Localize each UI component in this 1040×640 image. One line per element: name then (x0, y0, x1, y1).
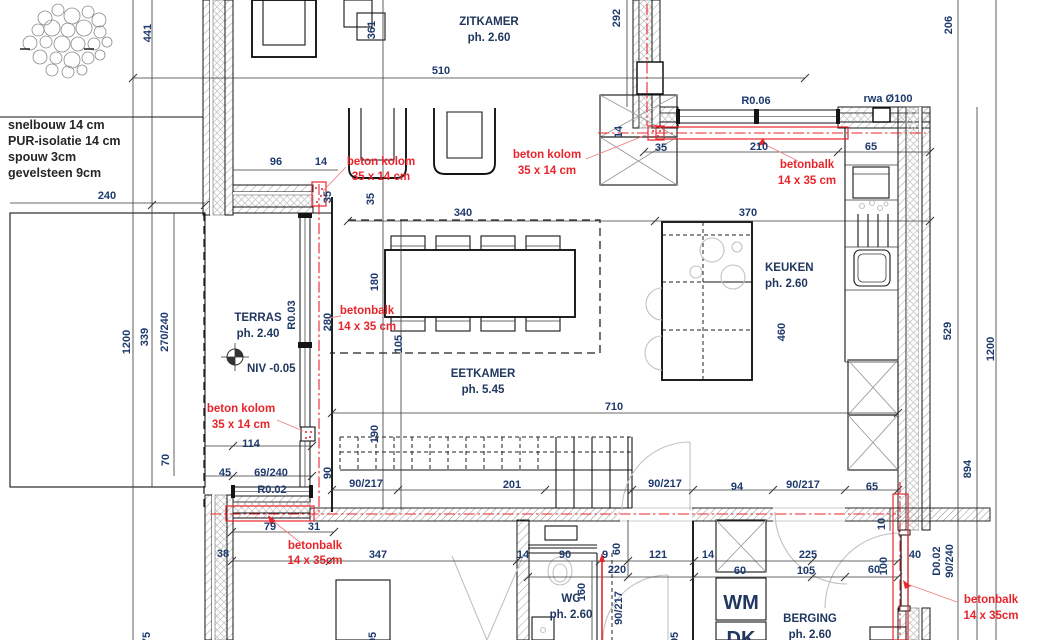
dim-69-240: 69/240 (254, 467, 288, 479)
dim-340: 340 (454, 207, 472, 219)
dim-460: 460 (776, 323, 788, 341)
wall-spec-line3: spouw 3cm (8, 150, 76, 164)
dim-70: 70 (160, 454, 172, 466)
dim-1200-left: 1200 (121, 330, 133, 354)
wall-terras-corner (233, 185, 313, 213)
dim-95-b: 95 (669, 632, 681, 640)
island-stools (645, 288, 662, 370)
dim-292: 292 (611, 9, 623, 27)
terras-niv: NIV -0.05 (247, 363, 296, 375)
dim-45: 45 (219, 467, 231, 479)
dim-79: 79 (264, 521, 276, 533)
dim-60-b: 60 (734, 565, 746, 577)
window-r003 (298, 213, 312, 492)
wall-chimney (633, 0, 663, 128)
note-kolom-1-size: 35 x 14 cm (352, 171, 410, 183)
dim-160: 160 (576, 583, 588, 601)
dim-door-b: 90/217 (648, 478, 682, 490)
dim-201: 201 (503, 479, 521, 491)
tree-sketch (20, 4, 112, 78)
dim-90-b: 90 (559, 549, 571, 561)
note-kolom-1: beton kolom (347, 156, 415, 168)
dim-10: 10 (876, 518, 888, 530)
side-tables (344, 0, 385, 40)
wall-bottom-left (205, 495, 310, 640)
dim-529: 529 (942, 322, 954, 340)
floorplan-canvas: snelbouw 14 cm PUR-isolatie 14 cm spouw … (0, 0, 1040, 640)
dim-180: 180 (369, 273, 381, 291)
dim-1200-right: 1200 (985, 337, 997, 361)
note-balk-3-size: 14 x 35cm (288, 555, 343, 567)
dim-65-b: 65 (866, 481, 878, 493)
drain-rack (858, 214, 888, 247)
note-kolom-2-size: 35 x 14 cm (518, 165, 576, 177)
dim-347: 347 (369, 549, 387, 561)
dim-220: 220 (608, 564, 626, 576)
ref-r003: R0.03 (286, 300, 298, 329)
note-kolom-3-size: 35 x 14 cm (212, 419, 270, 431)
dim-339: 339 (139, 328, 151, 346)
dim-31: 31 (308, 521, 320, 533)
floorplan-drawing: snelbouw 14 cm PUR-isolatie 14 cm spouw … (0, 0, 1040, 640)
dim-95-a: 95 (367, 632, 379, 640)
armchair-2 (434, 108, 495, 174)
wall-spec-line4: gevelsteen 9cm (8, 166, 101, 180)
note-balk-1: betonbalk (780, 159, 835, 171)
dim-280: 280 (322, 313, 334, 331)
dim-38: 38 (217, 548, 229, 560)
left-outbuilding (10, 213, 205, 487)
ref-d002: D0.02 (931, 546, 943, 575)
dim-240: 240 (98, 190, 116, 202)
dim-105-b: 105 (797, 565, 815, 577)
note-balk-4-size: 14 x 35cm (964, 610, 1019, 622)
dim-510: 510 (432, 65, 450, 77)
room-keuken: KEUKEN (765, 262, 814, 274)
kitchen-counter-appliances (853, 167, 890, 286)
dining-table (385, 236, 575, 331)
dim-14-a: 14 (315, 156, 328, 168)
dim-14-d: 14 (702, 549, 715, 561)
wall-wc (517, 520, 529, 640)
dim-94: 94 (731, 481, 744, 493)
note-balk-3: betonbalk (288, 540, 343, 552)
dim-894: 894 (962, 459, 974, 478)
wc-fixtures (532, 526, 612, 640)
wall-spec-line1: snelbouw 14 cm (8, 118, 105, 132)
window-r006 (676, 109, 840, 124)
appliance-dk: DK (727, 628, 756, 640)
dim-121: 121 (649, 549, 667, 561)
dimension-lines (10, 0, 996, 640)
ref-d002-size: 90/240 (944, 544, 956, 578)
room-terras: TERRAS (234, 312, 282, 324)
dim-100: 100 (878, 557, 890, 575)
room-eetkamer: EETKAMER (451, 368, 516, 380)
garage-marks (336, 556, 523, 640)
chairs-top (391, 236, 560, 250)
wall-spec-line2: PUR-isolatie 14 cm (8, 134, 121, 148)
note-balk-2-size: 14 x 35 cm (338, 321, 396, 333)
note-balk-2: betonbalk (340, 305, 395, 317)
note-balk-1-size: 14 x 35 cm (778, 175, 836, 187)
dim-114: 114 (242, 438, 261, 450)
dim-35-a: 35 (655, 142, 667, 154)
level-symbol (221, 343, 249, 371)
dim-door-a: 90/217 (349, 478, 383, 490)
dim-105-a: 105 (393, 335, 405, 353)
note-kolom-2: beton kolom (513, 149, 581, 161)
cooktop (690, 238, 745, 289)
room-wc-ph: ph. 2.60 (550, 609, 593, 621)
wall-spec-note: snelbouw 14 cm PUR-isolatie 14 cm spouw … (8, 118, 121, 180)
note-balk-4: betonbalk (964, 594, 1019, 606)
dim-door-d: 90/217 (613, 591, 625, 625)
dim-370: 370 (739, 207, 757, 219)
dim-35-c: 35 (365, 193, 377, 205)
room-keuken-ph: ph. 2.60 (765, 278, 808, 290)
kitchen-tall-cabinets (848, 360, 898, 470)
room-zitkamer-ph: ph. 2.60 (468, 32, 511, 44)
kitchen-island (645, 222, 752, 380)
chairs-bottom (391, 317, 560, 331)
dim-75: 75 (141, 632, 153, 640)
dim-441: 441 (142, 24, 154, 42)
wall-left-upper (203, 0, 233, 215)
ref-r006: R0.06 (741, 95, 770, 107)
room-terras-ph: ph. 2.40 (237, 328, 280, 340)
dim-35-b: 35 (322, 191, 334, 203)
room-eetkamer-ph: ph. 5.45 (462, 384, 505, 396)
dim-225: 225 (799, 549, 817, 561)
dim-door-c: 90/217 (786, 479, 820, 491)
appliance-wm: WM (723, 592, 759, 614)
sofa (252, 0, 316, 57)
room-berging-ph: ph. 2.60 (789, 629, 832, 640)
dim-361: 361 (366, 21, 378, 39)
dim-270-240: 270/240 (159, 312, 171, 352)
dim-190: 190 (369, 425, 381, 443)
dim-9: 9 (602, 549, 608, 561)
stairs (340, 437, 632, 508)
dim-710: 710 (605, 401, 623, 413)
ref-rwa: rwa Ø100 (864, 93, 913, 105)
dim-14-b: 14 (613, 125, 625, 138)
rwa-pipe (873, 108, 890, 122)
dim-65-a: 65 (865, 141, 877, 153)
room-berging: BERGING (783, 613, 837, 625)
dim-40: 40 (909, 549, 921, 561)
dim-96: 96 (270, 156, 282, 168)
dim-14-c: 14 (517, 549, 530, 561)
dim-206: 206 (943, 16, 955, 34)
room-zitkamer: ZITKAMER (459, 16, 519, 28)
dim-60-a: 60 (611, 543, 623, 555)
ref-r002: R0.02 (257, 484, 286, 496)
note-kolom-3: beton kolom (207, 403, 275, 415)
dim-210: 210 (750, 141, 768, 153)
dim-90-a: 90 (322, 467, 334, 479)
